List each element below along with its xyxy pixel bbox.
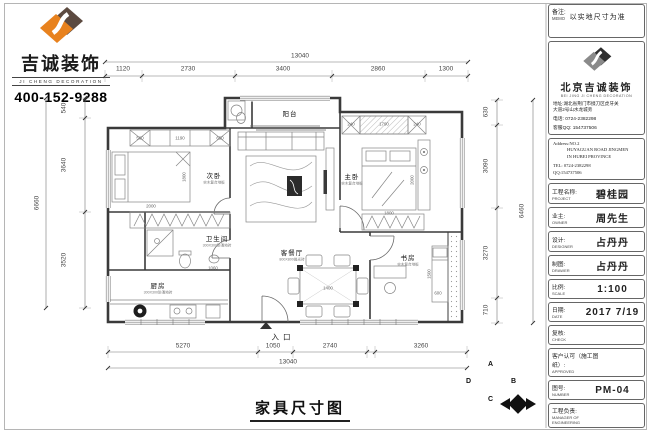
field-label: 工程负责: xyxy=(552,406,604,415)
field-label: 制图: xyxy=(552,259,582,268)
field-label-en: OWNER xyxy=(552,220,582,225)
field-label: 业主: xyxy=(552,211,582,220)
field-label-en: PROJECT xyxy=(552,196,582,201)
memo-text: 以实地尺寸为准 xyxy=(570,12,626,22)
field-value: 占丹丹 xyxy=(584,234,641,249)
field-label-en: NUMBER xyxy=(552,392,582,397)
drawing-sheet: 吉诚装饰 JI CHENG DECORATION 400-152-9288 xyxy=(0,0,650,433)
drawing-title-text: 家具尺寸图 xyxy=(255,400,345,417)
titleblock-field-drawer: 制图:DRAWER占丹丹 xyxy=(548,255,645,276)
titleblock: 备注: MEMO 以实地尺寸为准 北京吉诚装饰 BEI JING JI CHEN… xyxy=(548,4,645,428)
company-address-2: 大道2号山水龙城旁 xyxy=(553,107,592,112)
titleblock-field-date: 日期:DATE2017 7/19 xyxy=(548,302,645,322)
titleblock-field-number: 图号:NUMBERPM-04 xyxy=(548,380,645,400)
field-label-en: DESIGNER xyxy=(552,244,582,249)
titleblock-field-designer: 设计:DESIGNER占丹丹 xyxy=(548,231,645,252)
memo-label: 备注: xyxy=(552,7,566,16)
titleblock-fields: 工程名称:PROJECT碧桂园业主:OWNER周先生设计:DESIGNER占丹丹… xyxy=(548,183,645,428)
field-label-en: CHECK xyxy=(552,337,582,342)
field-label: 复核: xyxy=(552,328,582,337)
company-box: 北京吉诚装饰 BEI JING JI CHENG DECORATION 地址:湖… xyxy=(548,41,645,135)
field-value: 占丹丹 xyxy=(584,258,641,273)
field-label-en: SCALE xyxy=(552,291,582,296)
field-label: 日期: xyxy=(552,305,582,314)
compass-icon xyxy=(500,394,536,414)
field-label: 比例: xyxy=(552,282,582,291)
memo-label-en: MEMO xyxy=(552,16,566,21)
address-en-box: Address:NO.2 HUYAGUAN ROAD JINGMEN IN HU… xyxy=(548,138,645,180)
field-value: PM-04 xyxy=(584,385,641,396)
field-label: 工程名称: xyxy=(552,187,582,196)
titleblock-field-manager-of-engineering: 工程负责:MANAGER OF ENGINEERING xyxy=(548,403,645,428)
field-value: 周先生 xyxy=(584,210,641,225)
drawing-title: 家具尺寸图 xyxy=(250,397,350,422)
field-value: 2017 7/19 xyxy=(584,307,641,318)
field-label-en: DRAWER xyxy=(552,268,582,273)
company-address-1: 地址:湖北省荆门市掇刀区虎牙关 xyxy=(553,101,619,106)
memo-box: 备注: MEMO 以实地尺寸为准 xyxy=(548,4,645,38)
titleblock-field-approved: 客户认可（施工图纸）:APPROVED xyxy=(548,348,645,377)
field-label: 设计: xyxy=(552,235,582,244)
titleblock-field-check: 复核:CHECK xyxy=(548,325,645,345)
titleblock-field-owner: 业主:OWNER周先生 xyxy=(548,207,645,228)
company-logo-small-icon xyxy=(582,46,612,72)
company-qq: 客服QQ: 154737506 xyxy=(553,124,640,131)
doors xyxy=(212,126,394,322)
address-en-line3: IN HUBEI PROVINCE xyxy=(567,154,640,160)
company-name: 北京吉诚装饰 xyxy=(549,79,644,94)
field-label-en: APPROVED xyxy=(552,369,604,374)
company-name-en: BEI JING JI CHENG DECORATION xyxy=(549,94,644,98)
field-value: 碧桂园 xyxy=(584,186,641,201)
field-label: 客户认可（施工图纸）: xyxy=(552,351,604,369)
field-label-en: DATE xyxy=(552,314,582,319)
furniture xyxy=(110,101,461,320)
company-tel: 电话: 0724-2382298 xyxy=(553,115,640,122)
field-label-en: MANAGER OF ENGINEERING xyxy=(552,415,604,425)
titleblock-field-scale: 比例:SCALE1:100 xyxy=(548,279,645,299)
titleblock-field-project: 工程名称:PROJECT碧桂园 xyxy=(548,183,645,204)
field-value: 1:100 xyxy=(584,284,641,295)
field-label: 图号: xyxy=(552,383,582,392)
address-en-qq: QQ:154737506 xyxy=(553,170,640,176)
